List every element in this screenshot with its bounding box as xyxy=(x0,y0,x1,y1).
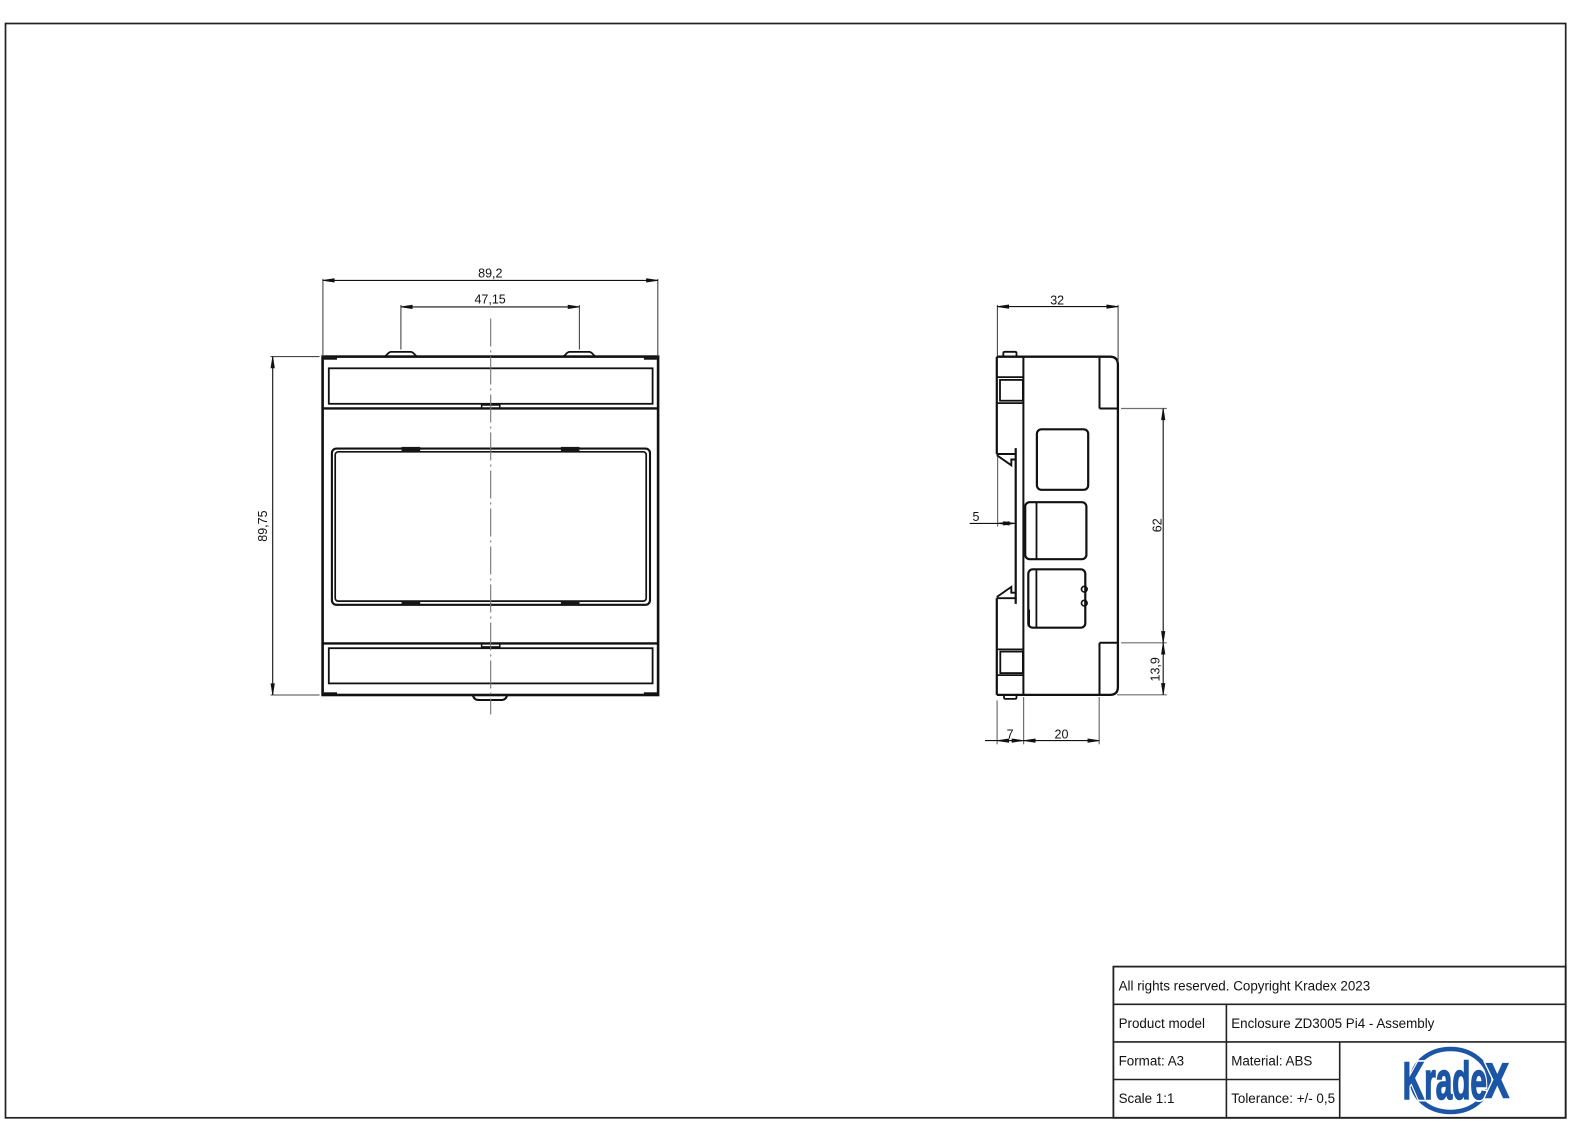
svg-text:20: 20 xyxy=(1055,727,1069,741)
svg-text:7: 7 xyxy=(1007,727,1014,741)
svg-text:32: 32 xyxy=(1050,294,1064,308)
svg-text:89,75: 89,75 xyxy=(256,510,270,541)
svg-text:Scale 1:1: Scale 1:1 xyxy=(1119,1091,1175,1106)
svg-text:All rights reserved. Copyright: All rights reserved. Copyright Kradex 20… xyxy=(1119,978,1371,993)
svg-text:62: 62 xyxy=(1150,518,1164,532)
svg-text:5: 5 xyxy=(973,510,980,524)
svg-text:Format: A3: Format: A3 xyxy=(1119,1054,1185,1069)
svg-text:Tolerance: +/- 0,5: Tolerance: +/- 0,5 xyxy=(1231,1091,1335,1106)
svg-text:Enclosure ZD3005 Pi4 - Assembl: Enclosure ZD3005 Pi4 - Assembly xyxy=(1231,1016,1434,1031)
svg-text:Product model: Product model xyxy=(1119,1016,1205,1031)
svg-text:Krade: Krade xyxy=(1403,1052,1487,1111)
svg-text:Material: ABS: Material: ABS xyxy=(1231,1054,1312,1069)
svg-text:47,15: 47,15 xyxy=(474,293,505,307)
svg-text:89,2: 89,2 xyxy=(478,267,502,281)
svg-text:13,9: 13,9 xyxy=(1149,657,1163,681)
svg-text:X: X xyxy=(1486,1054,1510,1109)
